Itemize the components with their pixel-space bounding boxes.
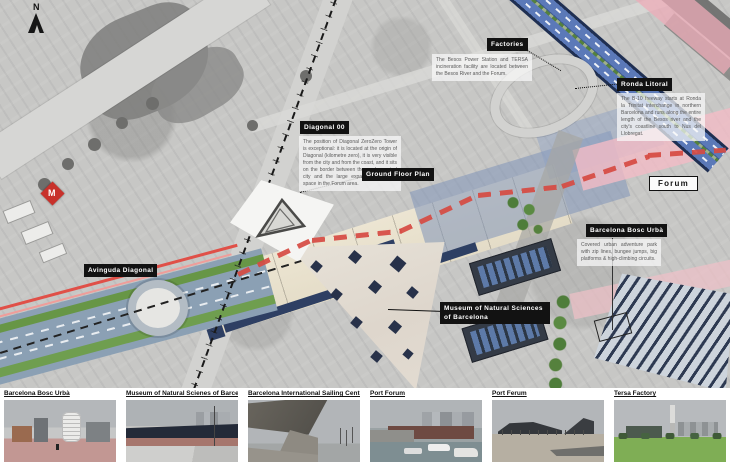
photo-museum — [126, 400, 238, 462]
tree-cluster — [116, 117, 128, 129]
photo-building — [86, 422, 110, 442]
tree-cluster — [247, 120, 258, 131]
photo-cell-sailing-center: Barcelona International Sailing Center — [248, 390, 360, 467]
label-museum: Museum of Natural Sciences of Barcelona — [440, 302, 550, 324]
diagonal00-footprint-triangle — [252, 196, 310, 242]
roundabout — [128, 280, 188, 336]
photo-port-forum-esplanade — [492, 400, 604, 462]
photo-boat — [404, 448, 422, 454]
photo-caption: Port Ferum — [492, 390, 604, 400]
photo-cell-bosc-urba: Barcelona Bosc Urbà — [4, 390, 116, 467]
photo-masts — [340, 428, 341, 444]
photo-cell-port-forum-marina: Port Forum — [370, 390, 482, 467]
note-ronda-litoral: The B-10 freeway starts at Ronda la Trin… — [617, 93, 705, 141]
presentation-board: M N Factories The Besos Power Station an… — [0, 0, 730, 467]
photo-strip: Barcelona Bosc Urbà Museum of Natural Sc… — [0, 388, 730, 467]
label-diagonal-00: Diagonal 00 — [300, 121, 349, 134]
photo-cell-museum: Museum of Natural Scienes of Barcelona — [126, 390, 238, 467]
label-forum: Forum — [649, 176, 698, 191]
photo-sailing-center — [248, 400, 360, 462]
photo-dock — [370, 430, 414, 442]
photo-sidewalk — [126, 446, 238, 462]
photo-dark-paving — [550, 446, 604, 456]
tree-cluster — [62, 158, 74, 170]
photo-chimney — [670, 405, 675, 435]
label-ronda-litoral: Ronda Litoral — [617, 78, 672, 91]
label-bosc-urba: Barcelona Bosc Urbà — [586, 224, 667, 237]
photo-caption: Port Forum — [370, 390, 482, 400]
tree-cluster — [146, 97, 159, 110]
photo-caption: Barcelona Bosc Urbà — [4, 390, 116, 400]
label-avinguda-diagonal: Avinguda Diagonal — [84, 264, 157, 277]
photo-caption: Tersa Factory — [614, 390, 726, 400]
photo-red-pavement — [126, 438, 238, 446]
photo-tersa-factory — [614, 400, 726, 462]
photo-port-forum-marina — [370, 400, 482, 462]
north-label: N — [33, 2, 40, 12]
photo-person — [56, 444, 59, 450]
tree-cluster — [88, 138, 101, 151]
photo-museum-building — [126, 424, 238, 438]
photo-building — [34, 418, 48, 442]
photo-pole — [214, 406, 215, 446]
photo-tree-row — [614, 433, 726, 439]
metro-m-label: M — [48, 188, 56, 198]
note-bosc-urba: Covered urban adventure park with zip li… — [577, 239, 661, 266]
photo-building — [12, 426, 32, 442]
aerial-map: M N Factories The Besos Power Station an… — [0, 0, 730, 390]
north-arrow-notch — [34, 25, 40, 34]
photo-distant-towers — [196, 412, 230, 426]
photo-boat — [428, 444, 450, 451]
photo-bosc-urba — [4, 400, 116, 462]
photo-caption: Barcelona International Sailing Center — [248, 390, 360, 400]
note-diagonal-00: The position of Diagonal ZeroZero Tower … — [299, 136, 401, 191]
photo-cell-tersa-factory: Tersa Factory — [614, 390, 726, 467]
photo-tower-white — [62, 412, 81, 442]
photo-cell-port-forum-esplanade: Port Ferum — [492, 390, 604, 467]
photo-canopy-posts — [502, 430, 592, 435]
label-factories: Factories — [487, 38, 528, 51]
photo-caption: Museum of Natural Scienes of Barcelona — [126, 390, 238, 400]
photo-boat — [454, 448, 478, 457]
note-factories: The Besos Power Station and TERSA incine… — [432, 54, 532, 81]
label-ground-floor-plan: Ground Floor Plan — [362, 168, 434, 181]
